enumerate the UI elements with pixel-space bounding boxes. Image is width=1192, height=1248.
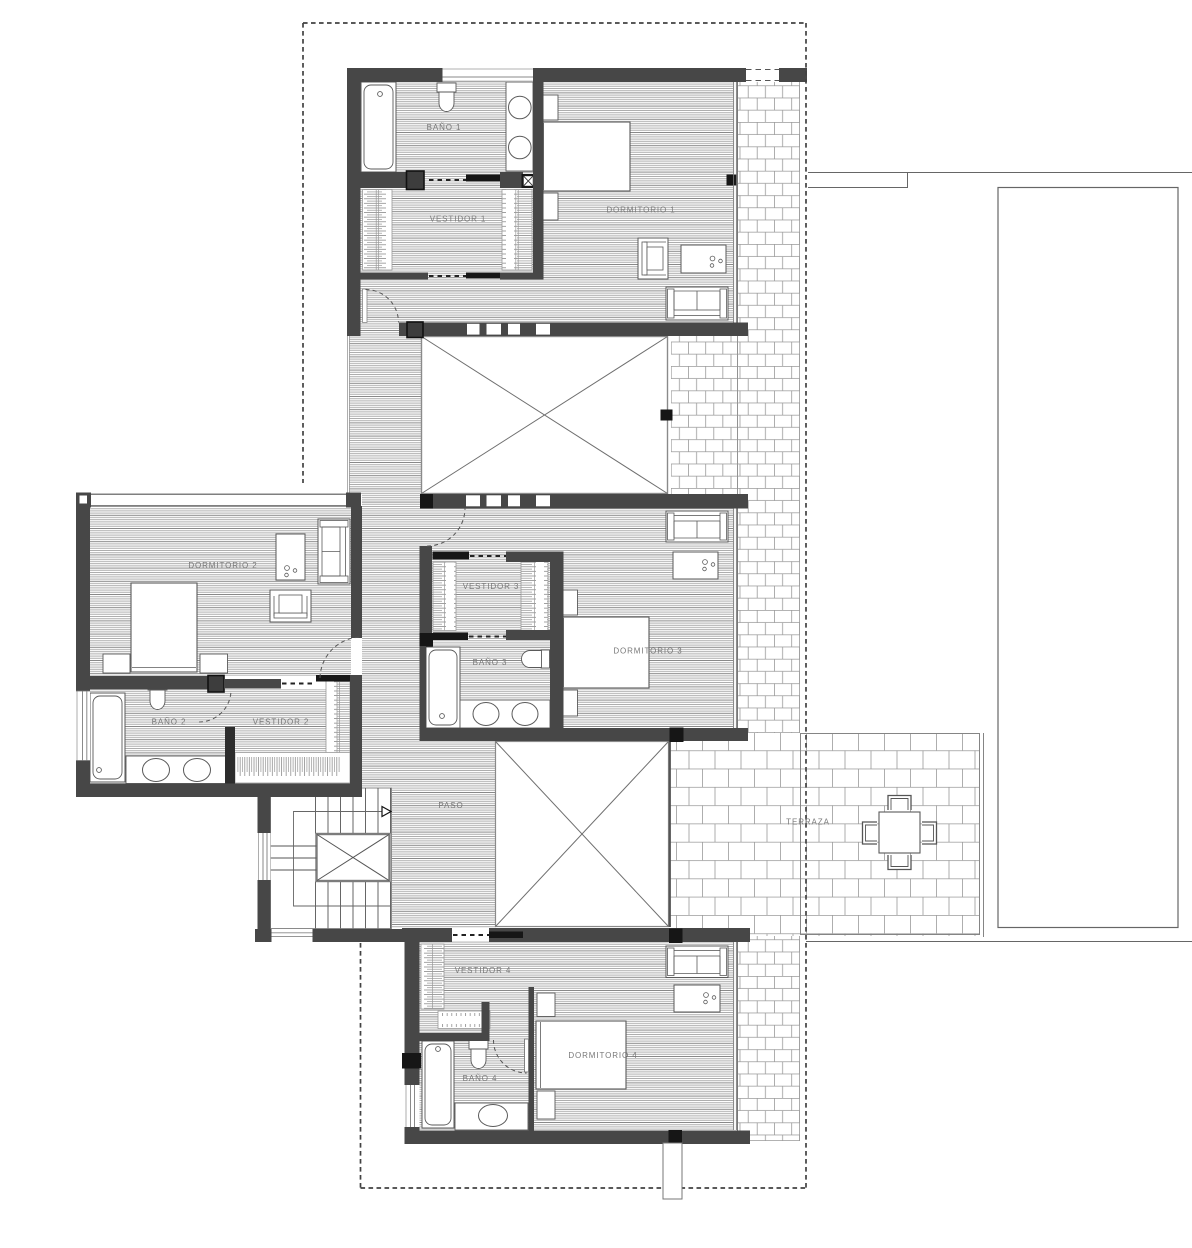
svg-text:VESTIDOR 4: VESTIDOR 4 <box>455 966 512 975</box>
svg-text:TERRAZA: TERRAZA <box>786 818 830 827</box>
svg-text:BAÑO 4: BAÑO 4 <box>463 1074 498 1083</box>
svg-text:DORMITORIO 3: DORMITORIO 3 <box>613 647 682 656</box>
svg-text:VESTIDOR 1: VESTIDOR 1 <box>430 215 487 224</box>
svg-text:DORMITORIO 1: DORMITORIO 1 <box>606 206 675 215</box>
svg-text:PASO: PASO <box>438 801 463 810</box>
svg-text:BAÑO 1: BAÑO 1 <box>427 123 462 132</box>
svg-text:DORMITORIO 2: DORMITORIO 2 <box>188 561 257 570</box>
svg-text:BAÑO 2: BAÑO 2 <box>152 718 187 727</box>
svg-text:BAÑO 3: BAÑO 3 <box>473 658 508 667</box>
svg-text:VESTIDOR 2: VESTIDOR 2 <box>253 718 310 727</box>
svg-text:DORMITORIO 4: DORMITORIO 4 <box>568 1051 637 1060</box>
svg-text:VESTIDOR 3: VESTIDOR 3 <box>463 582 520 591</box>
